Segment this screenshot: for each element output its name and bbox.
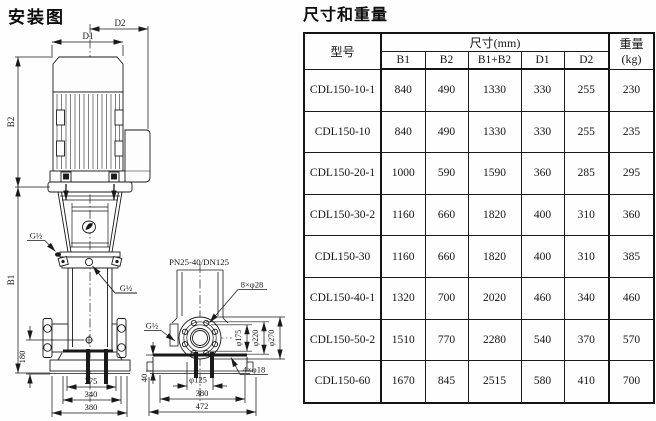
b2-cell: 490 bbox=[425, 111, 468, 153]
dim-label-d2: D2 bbox=[115, 18, 126, 28]
dim-label-472: 472 bbox=[196, 401, 209, 411]
dim-label-340: 340 bbox=[85, 389, 98, 399]
b1-cell: 1510 bbox=[381, 319, 425, 361]
table-row: CDL150-40-1 1320 700 2020 460 340 460 bbox=[304, 277, 654, 319]
model-cell: CDL150-10-1 bbox=[304, 69, 381, 111]
b1-cell: 840 bbox=[381, 111, 425, 153]
d2-cell: 370 bbox=[564, 319, 609, 361]
col-header-b2: B2 bbox=[425, 52, 468, 70]
d1-cell: 330 bbox=[521, 111, 564, 153]
b2-cell: 845 bbox=[425, 361, 468, 403]
dia-label-125: φ125 bbox=[189, 375, 207, 385]
model-cell: CDL150-30 bbox=[304, 236, 381, 278]
port-label-g-side: G½ bbox=[146, 321, 159, 331]
b2-cell: 660 bbox=[425, 194, 468, 236]
installation-drawing: D2 D1 B2 B1 180 G½ G½ 275 340 380 PN25-4… bbox=[0, 0, 300, 421]
b1b2-cell: 1330 bbox=[468, 111, 521, 153]
table-row: CDL150-10-1 840 490 1330 330 255 230 bbox=[304, 69, 654, 111]
base-holes-label: 4×φ18 bbox=[243, 365, 265, 375]
dim-label-b2: B2 bbox=[6, 117, 16, 128]
dim-label-b1: B1 bbox=[6, 275, 16, 286]
model-cell: CDL150-40-1 bbox=[304, 277, 381, 319]
d2-cell: 255 bbox=[564, 69, 609, 111]
b2-cell: 590 bbox=[425, 153, 468, 195]
d1-cell: 400 bbox=[521, 194, 564, 236]
b2-cell: 700 bbox=[425, 277, 468, 319]
col-header-weight: 重量(kg) bbox=[609, 33, 654, 69]
weight-cell: 230 bbox=[609, 69, 654, 111]
catalog-page: 安装图 尺寸和重量 bbox=[0, 0, 656, 421]
b1b2-cell: 2020 bbox=[468, 277, 521, 319]
b1-cell: 1670 bbox=[381, 361, 425, 403]
b2-cell: 490 bbox=[425, 69, 468, 111]
front-view bbox=[26, 24, 150, 402]
table-row: CDL150-30 1160 660 1820 400 310 385 bbox=[304, 236, 654, 278]
col-header-b1b2: B1+B2 bbox=[468, 52, 521, 70]
b1-cell: 1000 bbox=[381, 153, 425, 195]
d1-cell: 460 bbox=[521, 277, 564, 319]
dim-label-d1: D1 bbox=[83, 31, 94, 41]
table-row: CDL150-30-2 1160 660 1820 400 310 360 bbox=[304, 194, 654, 236]
model-cell: CDL150-30-2 bbox=[304, 194, 381, 236]
d1-cell: 580 bbox=[521, 361, 564, 403]
model-cell: CDL150-50-2 bbox=[304, 319, 381, 361]
d1-cell: 360 bbox=[521, 153, 564, 195]
d2-cell: 340 bbox=[564, 277, 609, 319]
table-row: CDL150-20-1 1000 590 1590 360 285 295 bbox=[304, 153, 654, 195]
col-header-d1: D1 bbox=[521, 52, 564, 70]
b1-cell: 1160 bbox=[381, 194, 425, 236]
weight-cell: 235 bbox=[609, 111, 654, 153]
d1-cell: 330 bbox=[521, 69, 564, 111]
d2-cell: 255 bbox=[564, 111, 609, 153]
b1-cell: 1160 bbox=[381, 236, 425, 278]
d2-cell: 310 bbox=[564, 236, 609, 278]
b1b2-cell: 1330 bbox=[468, 69, 521, 111]
model-cell: CDL150-10 bbox=[304, 111, 381, 153]
dim-label-380: 380 bbox=[85, 402, 98, 412]
b1b2-cell: 1820 bbox=[468, 236, 521, 278]
dimensions-table: 型号 尺寸(mm) 重量(kg) B1 B2 B1+B2 D1 D2 CDL15… bbox=[303, 32, 655, 404]
weight-cell: 295 bbox=[609, 153, 654, 195]
d2-cell: 310 bbox=[564, 194, 609, 236]
dim-label-40: 40 bbox=[139, 374, 149, 383]
weight-cell: 570 bbox=[609, 319, 654, 361]
b1-cell: 1320 bbox=[381, 277, 425, 319]
b2-cell: 770 bbox=[425, 319, 468, 361]
col-header-d2: D2 bbox=[564, 52, 609, 70]
b2-cell: 660 bbox=[425, 236, 468, 278]
b1b2-cell: 2280 bbox=[468, 319, 521, 361]
dim-label-180: 180 bbox=[17, 351, 27, 364]
port-label-g-mid: G½ bbox=[120, 283, 133, 293]
col-header-b1: B1 bbox=[381, 52, 425, 70]
weight-cell: 460 bbox=[609, 277, 654, 319]
flange-spec-label: PN25-40/DN125 bbox=[169, 257, 230, 267]
b1b2-cell: 2515 bbox=[468, 361, 521, 403]
table-row: CDL150-50-2 1510 770 2280 540 370 570 bbox=[304, 319, 654, 361]
table-row: CDL150-60 1670 845 2515 580 410 700 bbox=[304, 361, 654, 403]
table-row: CDL150-10 840 490 1330 330 255 235 bbox=[304, 111, 654, 153]
weight-cell: 360 bbox=[609, 194, 654, 236]
port-label-g-top: G½ bbox=[30, 231, 43, 241]
weight-cell: 700 bbox=[609, 361, 654, 403]
dia-label-175: φ175 bbox=[234, 330, 243, 347]
b1b2-cell: 1820 bbox=[468, 194, 521, 236]
d2-cell: 285 bbox=[564, 153, 609, 195]
table-title: 尺寸和重量 bbox=[303, 1, 388, 25]
dim-label-side-380: 380 bbox=[196, 388, 209, 398]
d2-cell: 410 bbox=[564, 361, 609, 403]
b1b2-cell: 1590 bbox=[468, 153, 521, 195]
d1-cell: 400 bbox=[521, 236, 564, 278]
dia-label-220: φ220 bbox=[251, 330, 260, 347]
model-cell: CDL150-60 bbox=[304, 361, 381, 403]
b1-cell: 840 bbox=[381, 69, 425, 111]
model-cell: CDL150-20-1 bbox=[304, 153, 381, 195]
dia-label-270: φ270 bbox=[267, 330, 276, 347]
col-header-model: 型号 bbox=[304, 33, 381, 69]
dim-label-275: 275 bbox=[85, 376, 98, 386]
weight-cell: 385 bbox=[609, 236, 654, 278]
bolt-holes-label: 8×φ28 bbox=[241, 280, 263, 290]
d1-cell: 540 bbox=[521, 319, 564, 361]
col-group-dims: 尺寸(mm) bbox=[381, 33, 609, 52]
